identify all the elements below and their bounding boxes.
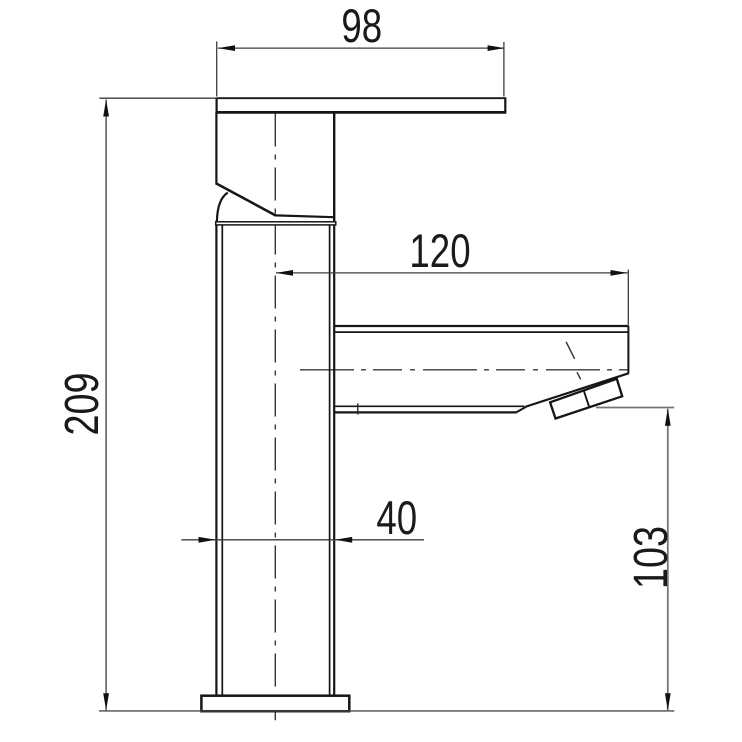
svg-text:209: 209 [56, 372, 110, 435]
svg-text:120: 120 [409, 224, 470, 276]
svg-text:40: 40 [376, 491, 417, 543]
svg-text:98: 98 [341, 0, 382, 52]
svg-text:103: 103 [625, 526, 679, 589]
